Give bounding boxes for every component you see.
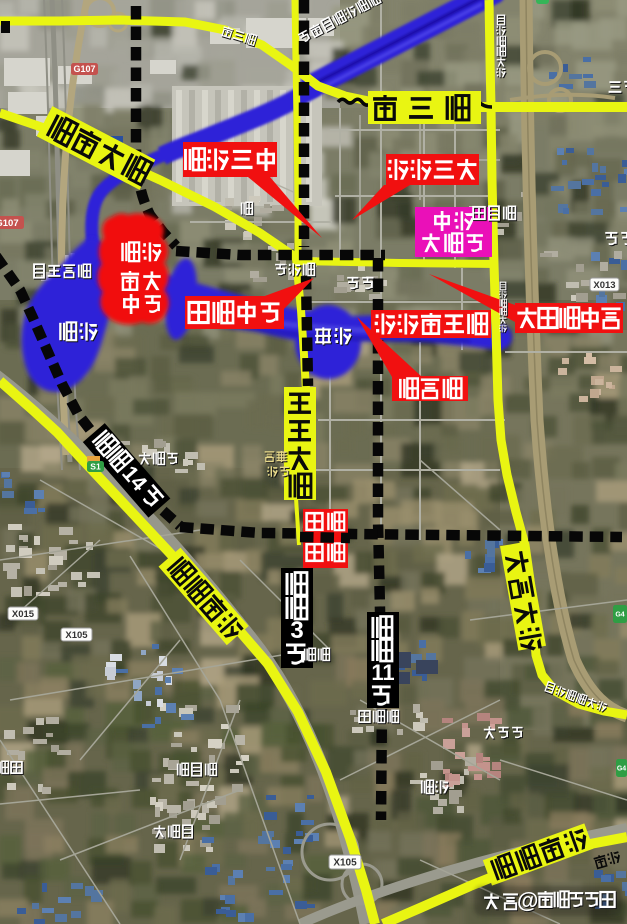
svg-text:S1: S1 [90, 462, 101, 472]
svg-text:G107: G107 [0, 218, 19, 229]
svg-text:X015: X015 [12, 609, 35, 620]
svg-text:X105: X105 [333, 858, 357, 869]
svg-text:G4: G4 [615, 612, 624, 619]
svg-text:X013: X013 [593, 280, 615, 291]
svg-text:@: @ [517, 888, 538, 913]
svg-text:X105: X105 [65, 630, 88, 641]
svg-text:G107: G107 [73, 64, 95, 74]
svg-text:11: 11 [371, 660, 394, 685]
svg-text:3: 3 [290, 617, 303, 644]
svg-text:G4: G4 [617, 766, 626, 773]
